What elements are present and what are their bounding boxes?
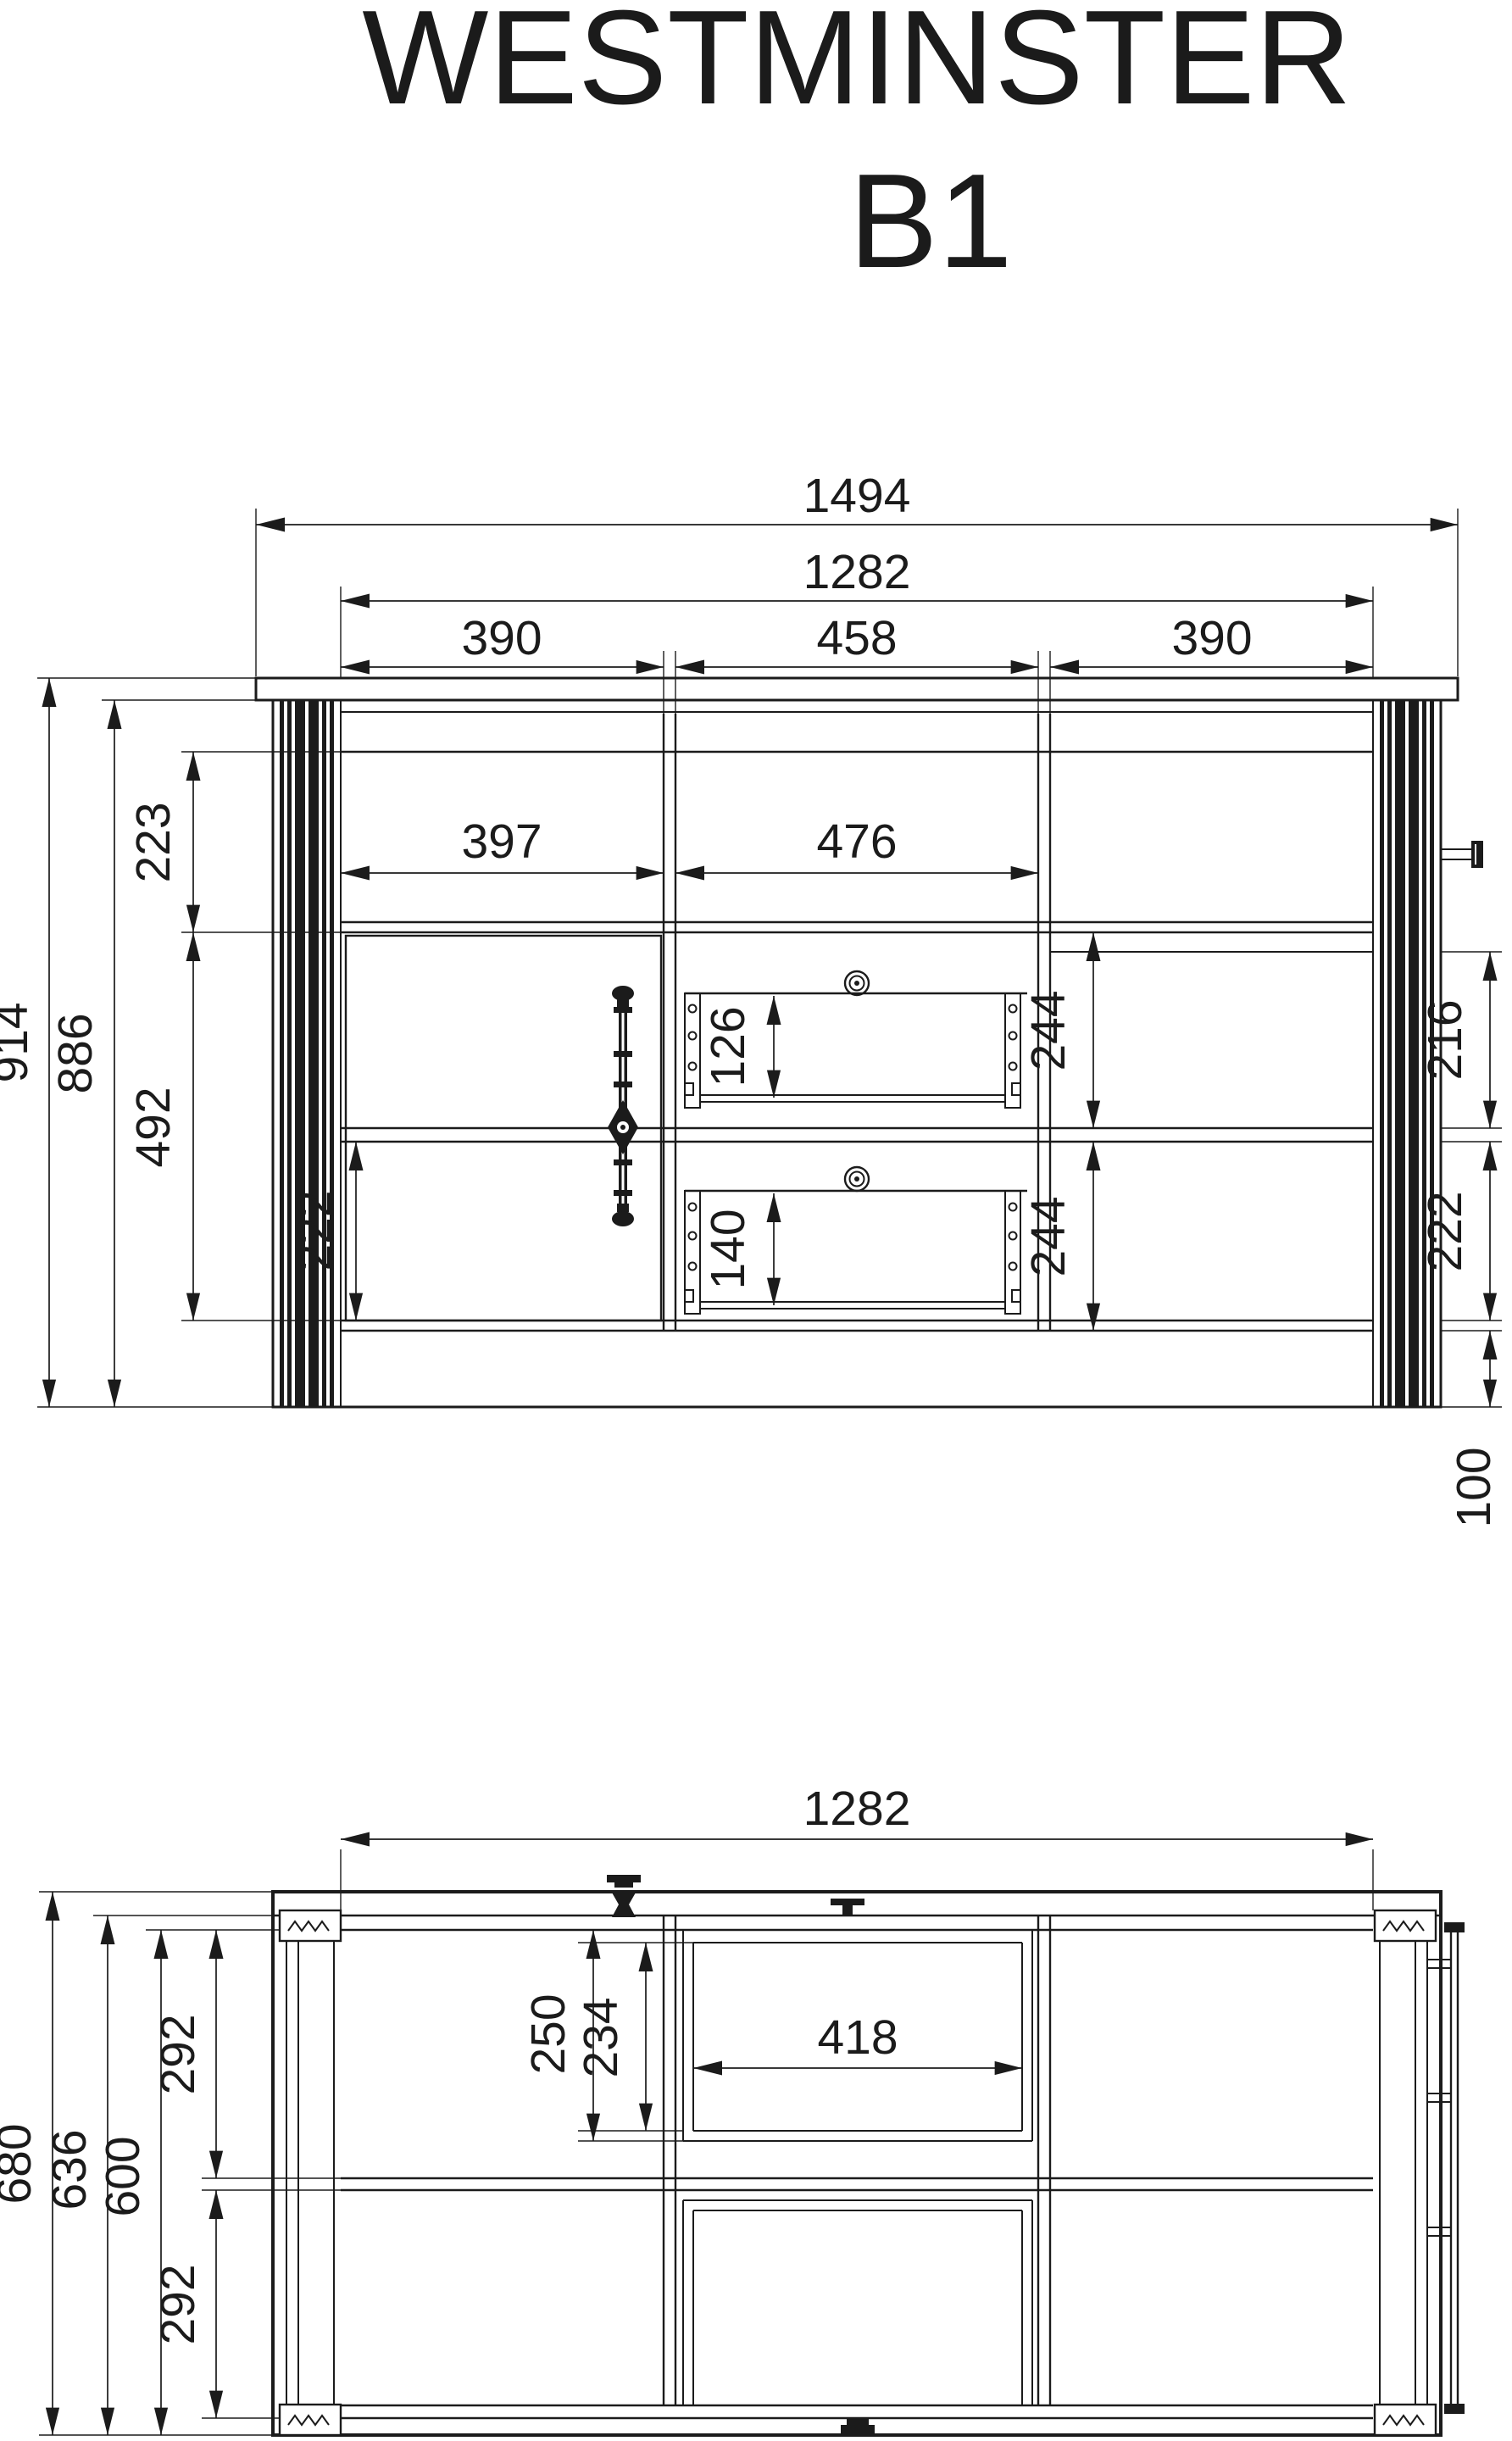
hinge-icon: [607, 1875, 641, 1917]
door-handle-icon: [608, 986, 638, 1226]
plan-dimensions: 1282 680 636 600 292 292: [0, 1782, 1373, 2435]
drawer-lock-knob-icon: [845, 971, 869, 995]
break-symbol: [280, 1910, 341, 1941]
hinge-icon: [841, 2417, 875, 2434]
drawer-housing-lower: [683, 2200, 1032, 2405]
break-symbol: [1375, 1910, 1436, 1941]
drawer-lock-knob-icon: [845, 1167, 869, 1191]
dim-right-upper-compartment: 244: [1021, 932, 1093, 1128]
dim-shelf-height: 223: [126, 752, 193, 932]
front-structure: [256, 678, 1483, 1407]
dim-label: 234: [574, 1997, 628, 2077]
dim-label: 292: [151, 2264, 205, 2344]
product-name: WESTMINSTER: [362, 0, 1351, 132]
model-name: B1: [848, 147, 1012, 296]
front-view: 1494 1282 390 458 390 397: [0, 469, 1502, 1528]
dim-label: 397: [461, 815, 542, 869]
dim-label: 100: [1447, 1447, 1501, 1527]
dim-label: 390: [1171, 611, 1252, 665]
carcass-outline: [273, 700, 1441, 1407]
westminster-b1-drawing: WESTMINSTER B1: [0, 0, 1512, 2441]
dim-label: 914: [0, 1002, 38, 1082]
dim-label: 1494: [803, 469, 911, 523]
dim-carcass-depth: 600: [96, 1930, 161, 2435]
side-knob-icon: [1441, 841, 1483, 868]
dim-total-height: 914: [0, 678, 49, 1407]
dim-label: 1282: [803, 545, 911, 599]
dim-shelf-opening-left: 397: [341, 815, 664, 873]
plan-extension-lines: [39, 1849, 1373, 2435]
dim-side-lower-section: 222: [1418, 1142, 1490, 1321]
dim-col-left: 390: [341, 611, 664, 667]
dim-label: 126: [701, 1006, 755, 1087]
dim-label: 292: [151, 2014, 205, 2094]
dim-drawer-top-inner: 126: [701, 996, 774, 1098]
pilaster-left: [273, 700, 341, 1407]
dim-plan-carcass-width: 1282: [341, 1782, 1373, 1839]
dim-label: 418: [817, 2010, 898, 2065]
dim-col-right: 390: [1050, 611, 1373, 667]
dim-door-height: 492: [126, 932, 193, 1321]
dim-label: 1282: [803, 1782, 911, 1836]
dim-label: 886: [48, 1013, 103, 1093]
break-symbol: [1375, 2405, 1436, 2435]
front-extension-lines: [37, 509, 1502, 1407]
crown-top-board: [256, 678, 1458, 700]
plan-outline: [273, 1892, 1441, 2435]
dim-label: 458: [816, 611, 897, 665]
front-dimensions: 1494 1282 390 458 390 397: [0, 469, 1501, 1528]
hinge-icon: [831, 1899, 864, 1916]
dim-carcass-height: 886: [48, 700, 114, 1407]
dim-label: 680: [0, 2123, 42, 2204]
dim-label: 476: [816, 815, 897, 869]
dim-label: 140: [701, 1209, 755, 1289]
dim-label: 223: [126, 802, 181, 882]
dim-label: 636: [42, 2129, 97, 2210]
dim-col-center: 458: [675, 611, 1038, 667]
dim-label: 222: [287, 1190, 342, 1271]
dim-label: 244: [1021, 990, 1076, 1070]
dim-shelf-opening-center: 476: [675, 815, 1038, 873]
dim-label: 222: [1418, 1191, 1472, 1271]
open-door-edge: [1427, 1922, 1465, 2414]
dim-right-lower-compartment: 244: [1021, 1142, 1093, 1331]
plan-structure: [273, 1875, 1465, 2435]
drawing-title: WESTMINSTER B1: [362, 0, 1351, 296]
dim-label: 492: [126, 1087, 181, 1167]
break-symbol: [280, 2405, 341, 2435]
plan-side-panel-right: [1380, 1916, 1427, 2435]
dim-carcass-width: 1282: [341, 545, 1373, 601]
dim-inner-depth-back: 234: [574, 1943, 646, 2131]
dim-label: 390: [461, 611, 542, 665]
technical-drawing-page: WESTMINSTER B1: [0, 0, 1512, 2441]
dim-plinth-height: 100: [1447, 1331, 1501, 1528]
dim-label: 216: [1418, 999, 1472, 1080]
dim-label: 244: [1021, 1196, 1076, 1276]
dim-label: 600: [96, 2136, 150, 2216]
dim-drawer-opening-width: 418: [693, 2010, 1022, 2068]
dim-side-upper-section: 216: [1418, 952, 1490, 1128]
plan-view: 1282 680 636 600 292 292: [0, 1782, 1465, 2435]
plan-side-panel-left: [286, 1916, 334, 2435]
dim-total-width: 1494: [256, 469, 1458, 525]
dim-drawer-bottom-inner: 140: [701, 1193, 774, 1305]
dim-label: 250: [521, 1993, 575, 2074]
